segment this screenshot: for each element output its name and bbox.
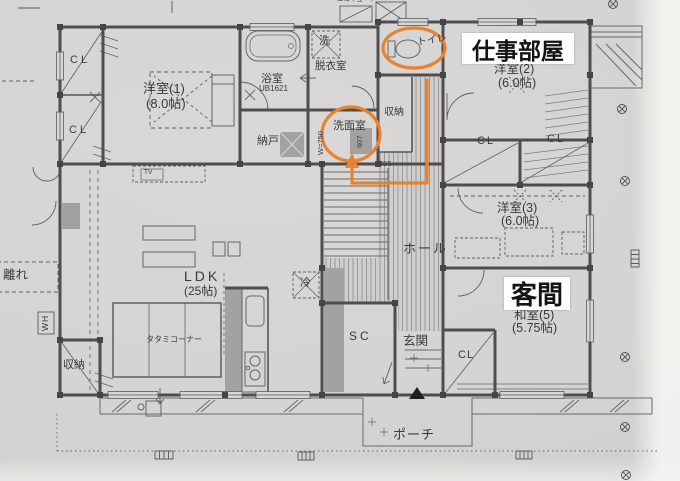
site-boundary — [57, 414, 658, 451]
room-size-ldk: (25帖) — [184, 285, 217, 297]
bath-drain — [289, 44, 294, 49]
sofa — [143, 226, 195, 240]
room-size-washitsu: (5.75帖) — [512, 322, 557, 335]
closet-label-ne-left: CL — [477, 136, 495, 147]
chair — [213, 242, 225, 256]
kitchen-sink — [246, 296, 264, 326]
room-label-nando: 納戸 — [257, 136, 279, 147]
dimension-455: 455 — [379, 160, 392, 168]
washer-label: 洗 — [319, 36, 330, 47]
room-label-hall: ホール — [403, 242, 448, 255]
bed — [212, 75, 234, 126]
fridge-label: 冷 — [300, 278, 311, 289]
room-label-yoshitsu3: 洋室(3) — [497, 202, 537, 215]
dimension-w750: W=750 — [317, 131, 325, 155]
pantry-wall — [324, 268, 344, 392]
guest-room-annotation: 客間 — [504, 277, 570, 310]
room-label-genkan: 玄関 — [403, 335, 428, 348]
stove — [245, 352, 265, 386]
floor-plan-drawing — [0, 0, 680, 481]
room-label-ldk: LDK — [184, 269, 220, 283]
room-size-yoshitsu2: (6.0帖) — [498, 77, 536, 90]
bathtub — [246, 31, 300, 61]
room-label-dressing: 脱衣室 — [315, 61, 347, 72]
balcony — [590, 26, 642, 88]
dimension-607: 607 — [356, 135, 364, 148]
bath-model-label: UB1621 — [259, 85, 288, 93]
hanare-label: 離れ — [3, 269, 28, 282]
tatami-corner-label: タタミコーナー — [146, 336, 202, 344]
porch-label: ポーチ — [393, 428, 435, 441]
closet-label-nw-bottom: CL — [69, 125, 89, 136]
chair — [228, 242, 240, 256]
closet-label-west: 収納 — [63, 360, 85, 371]
ecocute-label: エコキュート — [337, 0, 376, 4]
water-heater-label: WH — [41, 315, 50, 331]
entrance-triangle — [409, 387, 425, 399]
closet-label-washitsu: CL — [458, 350, 474, 361]
closet-label-ne-right: CL — [547, 134, 565, 145]
closet-label-hall: 収納 — [384, 108, 404, 118]
room-size-yoshitsu3: (6.0帖) — [501, 215, 539, 228]
room-size-yoshitsu1: (8.0帖) — [146, 97, 186, 110]
west-shelf — [62, 203, 80, 229]
dimension-ticks — [18, 1, 172, 13]
room-label-senmen: 洗面室 — [333, 121, 366, 132]
shoe-closet-label: SC — [349, 330, 372, 342]
work-room-annotation: 仕事部屋 — [462, 33, 574, 64]
toilet-tank — [388, 41, 395, 57]
room-label-yoshitsu1: 洋室(1) — [143, 82, 185, 95]
dining-table — [143, 252, 195, 267]
kitchen-back-counter — [225, 289, 242, 392]
closet-label-nw-top: CL — [70, 55, 90, 66]
tv-label: TV — [144, 170, 152, 177]
genkan-steps — [405, 350, 441, 368]
floor-plan-photo: CL CL 洋室(1) (8.0帖) 浴室 UB1621 洗 脱衣室 トイレ 納… — [0, 0, 680, 481]
